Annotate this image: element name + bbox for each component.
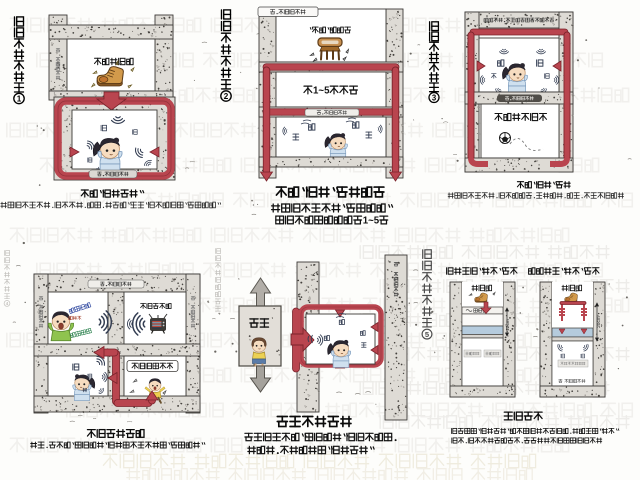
svg-text:5: 5 xyxy=(374,215,380,226)
svg-text:1: 1 xyxy=(17,95,22,104)
svg-text:5: 5 xyxy=(324,85,330,96)
svg-text:3: 3 xyxy=(432,94,437,103)
svg-text:2: 2 xyxy=(224,92,229,101)
